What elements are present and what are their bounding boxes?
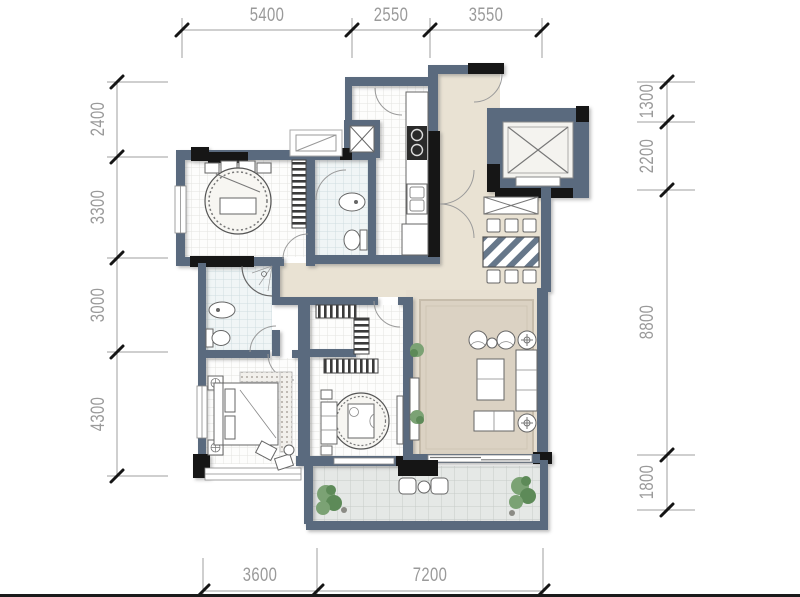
balcony-chair [399,478,416,494]
floorplan-drawing [0,0,800,597]
coffee-table [477,359,504,400]
master-wardrobe [292,160,306,228]
flue-duct [350,126,374,152]
dim-left-4300: 4300 [88,397,110,432]
dim-right-8800: 8800 [637,305,659,340]
dining-set [483,197,539,283]
sink [209,302,235,318]
floorplan-canvas: 5400 2550 3550 2400 3300 3000 4300 1300 … [0,0,800,597]
dim-left-3000: 3000 [88,288,110,323]
tv-panel [397,396,403,444]
dim-right-2200: 2200 [637,139,659,174]
dining-table [483,237,539,267]
armchair [469,331,487,349]
dim-top-2550: 2550 [374,5,409,27]
dim-top-3550: 3550 [469,5,504,27]
dim-left-3300: 3300 [88,190,110,225]
bed-rug [280,372,292,452]
tv-console [410,378,419,440]
balcony-table [418,481,430,493]
dim-right-1800: 1800 [637,465,659,500]
balcony-chair [431,478,448,494]
ac-platform [290,130,342,156]
closet-hatch [316,305,356,318]
bed [214,383,278,445]
dresser [321,402,337,444]
kitchen-fixtures [402,92,428,255]
dim-left-2400: 2400 [88,102,110,137]
sofa-right [516,350,537,411]
dim-top-5400: 5400 [250,5,285,27]
armchair [497,331,515,349]
middle-bedroom-balcony-window [334,458,394,464]
dim-bottom-7200: 7200 [413,565,448,587]
balcony-sliding-door [428,455,532,462]
toilet [212,331,230,346]
dim-right-1300: 1300 [637,84,659,119]
closet-hatch [354,318,369,354]
floor-lamp [284,445,294,455]
ac-unit [398,460,438,476]
closet-hatch [324,359,378,373]
elevator [503,122,573,186]
dim-bottom-3600: 3600 [243,565,278,587]
kitchen-cabinet [402,224,428,255]
